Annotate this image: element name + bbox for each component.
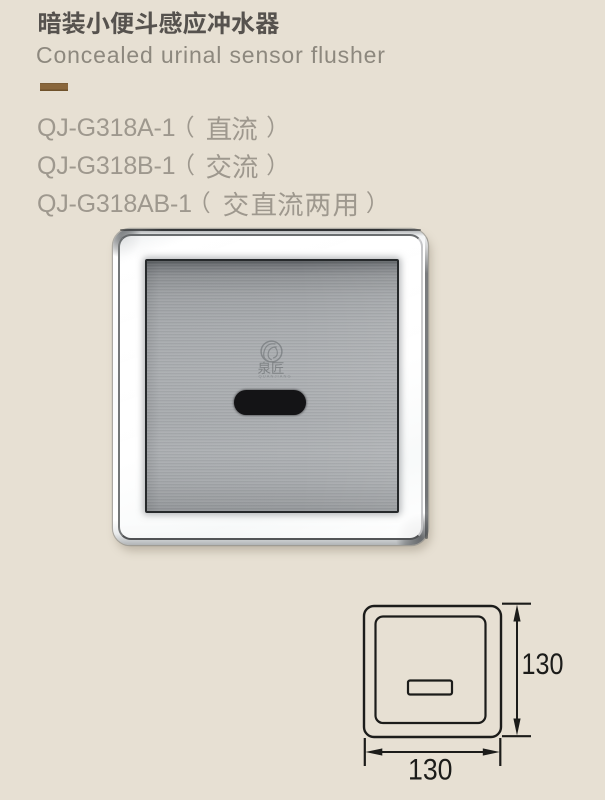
svg-text:130: 130 bbox=[522, 648, 564, 681]
svg-text:130: 130 bbox=[408, 754, 453, 787]
svg-text:QUANJIANG: QUANJIANG bbox=[259, 374, 292, 379]
